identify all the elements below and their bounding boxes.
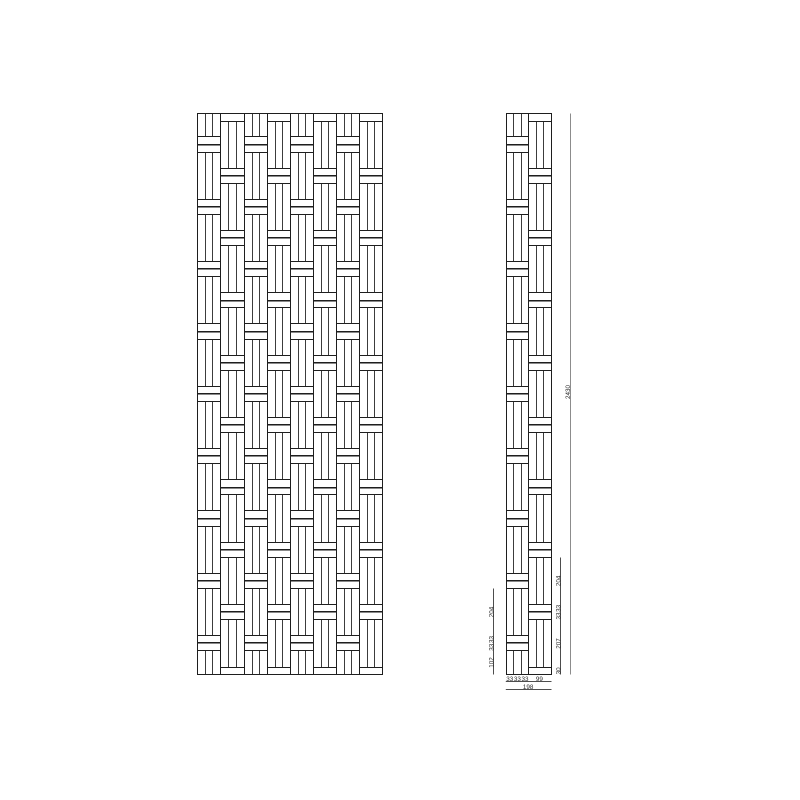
svg-text:33: 33 [514, 676, 522, 683]
svg-text:99: 99 [536, 676, 544, 683]
svg-text:33: 33 [506, 676, 514, 683]
svg-text:2430: 2430 [565, 385, 572, 400]
svg-text:204: 204 [555, 575, 562, 586]
svg-text:33: 33 [489, 636, 496, 644]
svg-text:102: 102 [489, 657, 496, 668]
svg-text:204: 204 [489, 606, 496, 617]
svg-text:198: 198 [523, 684, 534, 691]
svg-text:33: 33 [489, 643, 496, 651]
svg-text:33: 33 [555, 612, 562, 620]
svg-text:30: 30 [555, 667, 562, 675]
svg-text:33: 33 [555, 604, 562, 612]
svg-text:207: 207 [555, 638, 562, 649]
svg-text:33: 33 [521, 676, 529, 683]
